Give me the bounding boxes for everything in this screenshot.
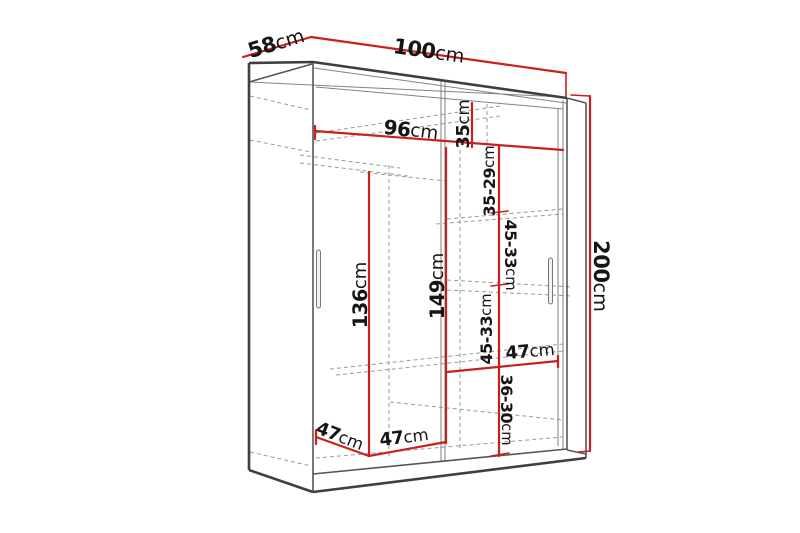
dim-label-shelf-gap-upper: 45-33cm [502,219,521,290]
dim-value: 45-33 [477,316,496,365]
dim-ticks-height-overall [571,95,590,452]
dim-label-shelf-gap-lower: 45-33cm [477,293,496,364]
dim-unit: cm [409,120,439,144]
dim-value: 36-30 [498,374,517,423]
right-door-handle-icon [549,258,553,304]
dim-value: 35-29 [480,168,499,217]
dim-label-right-section-width: 47cm [505,338,556,363]
dim-label-width-top: 100cm [392,34,466,68]
dim-unit: cm [503,268,520,290]
dim-label-height-overall: 200cm [589,240,613,312]
dim-value: 149 [426,280,449,319]
dim-label-top-shelf-height: 35cm [453,99,474,148]
dim-unit: cm [590,282,613,311]
dim-unit: cm [350,262,371,289]
dim-label-bottom-depth: 47cm [313,417,367,454]
dim-value: 136 [349,289,372,328]
dim-label-shelf-gap-top: 35-29cm [480,145,499,216]
wardrobe-dimension-diagram: 58cm 100cm 96cm 35cm 35-29cm 45-33cm 45-… [0,0,800,533]
dim-label-shelf-gap-bottom: 36-30cm [498,374,517,445]
dim-label-interior-width: 96cm [382,115,439,146]
dim-unit: cm [402,425,429,447]
dim-label-depth-top: 58cm [245,23,307,63]
dim-value: 47 [378,427,404,451]
dim-unit: cm [454,99,473,124]
dim-unit: cm [529,339,556,360]
dim-unit: cm [434,41,466,68]
dim-value: 200 [589,240,613,282]
hidden-edge-lines [250,96,572,466]
dim-unit: cm [499,423,516,445]
dim-line-interior-width [315,126,563,150]
dim-value: 45-33 [502,219,521,268]
dim-unit: cm [336,427,366,454]
dimension-lines [243,37,590,456]
hidden-edges [250,96,572,466]
dim-value: 35 [453,125,474,149]
dim-value: 96 [382,115,412,142]
dim-unit: cm [481,145,498,167]
diagram-canvas: 58cm 100cm 96cm 35cm 35-29cm 45-33cm 45-… [0,0,800,533]
dim-label-hanging-height: 136cm [349,262,372,329]
dim-value: 47 [505,341,531,364]
dim-unit: cm [478,293,495,315]
dim-unit: cm [427,253,448,280]
dim-unit: cm [272,24,307,55]
dim-value: 100 [392,34,437,64]
dim-label-middle-height: 149cm [426,253,449,320]
left-door-handle-icon [317,250,321,308]
